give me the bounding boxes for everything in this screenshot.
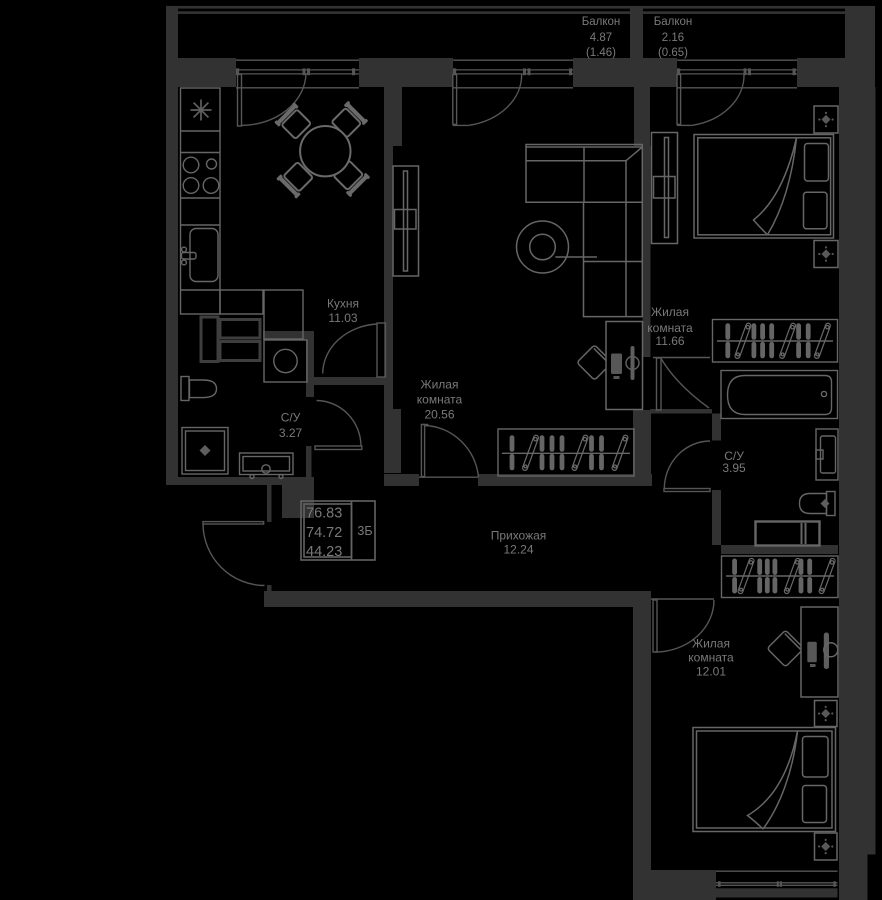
svg-text:(0.65): (0.65) <box>658 47 688 59</box>
svg-text:Кухня: Кухня <box>327 297 359 311</box>
svg-text:3.95: 3.95 <box>722 461 746 475</box>
svg-text:74.72: 74.72 <box>306 525 342 541</box>
svg-text:20.56: 20.56 <box>424 407 454 421</box>
svg-text:Прихожая: Прихожая <box>491 528 547 542</box>
svg-text:11.66: 11.66 <box>655 334 684 348</box>
svg-text:11.03: 11.03 <box>328 311 357 325</box>
svg-text:С/У: С/У <box>281 410 301 424</box>
svg-text:2.16: 2.16 <box>662 32 684 44</box>
svg-text:(1.46): (1.46) <box>586 47 616 59</box>
svg-text:Балкон: Балкон <box>582 16 621 28</box>
svg-text:Жилая: Жилая <box>651 305 689 319</box>
svg-text:12.24: 12.24 <box>503 542 533 556</box>
svg-text:Жилая: Жилая <box>421 377 459 391</box>
svg-text:Жилая: Жилая <box>692 636 730 650</box>
svg-text:комната: комната <box>417 392 463 406</box>
svg-text:44.23: 44.23 <box>306 544 342 560</box>
svg-text:Балкон: Балкон <box>654 16 693 28</box>
svg-text:76.83: 76.83 <box>306 506 342 522</box>
svg-text:12.01: 12.01 <box>696 664 726 678</box>
svg-text:4.87: 4.87 <box>590 32 612 44</box>
svg-text:комната: комната <box>688 650 734 664</box>
svg-text:3Б: 3Б <box>357 524 372 538</box>
svg-text:комната: комната <box>647 321 693 335</box>
svg-text:3.27: 3.27 <box>279 426 303 440</box>
